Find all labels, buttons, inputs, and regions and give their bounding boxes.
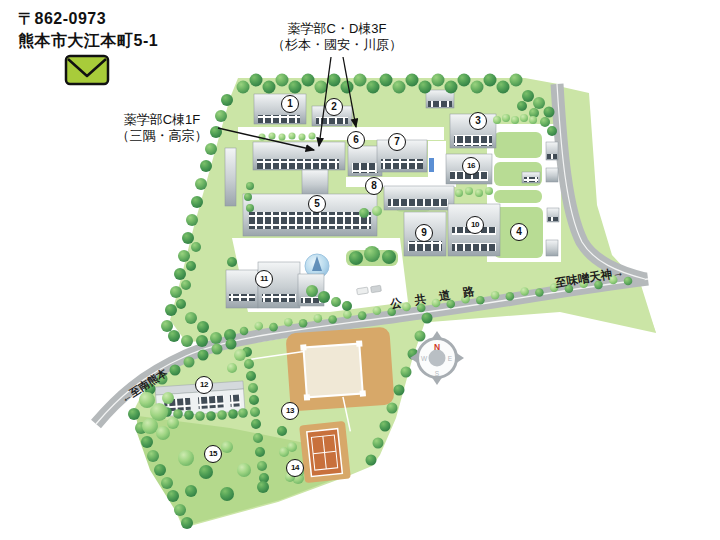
building-marker-4: 4 (510, 223, 528, 241)
building-marker-2: 2 (325, 98, 343, 116)
building-marker-16: 16 (462, 157, 480, 175)
compass-west-label: W (421, 355, 428, 362)
building-marker-12: 12 (195, 376, 213, 394)
building-marker-9: 9 (415, 224, 433, 242)
annotation-cd-line2: （杉本・國安・川原） (272, 37, 402, 53)
building-marker-14: 14 (286, 459, 304, 477)
building-marker-11: 11 (255, 270, 273, 288)
building-marker-1: 1 (281, 95, 299, 113)
building-marker-13: 13 (281, 402, 299, 420)
annotation-c-bldg-1f: 薬学部C棟1F （三隅・高宗） (117, 112, 208, 144)
envelope-icon (66, 56, 108, 84)
building-marker-6: 6 (347, 131, 365, 149)
building-marker-8: 8 (365, 177, 383, 195)
tennis-court (299, 421, 351, 483)
compass-east-label: E (448, 355, 453, 362)
annotation-c1-line2: （三隅・高宗） (117, 128, 208, 144)
compass-north-label: N (434, 342, 440, 352)
building-marker-15: 15 (204, 445, 222, 463)
annotation-cd-line1: 薬学部C・D棟3F (272, 21, 402, 37)
building-marker-3: 3 (469, 112, 487, 130)
postal-code: 〒862-0973 (18, 8, 158, 30)
building-marker-5: 5 (308, 195, 326, 213)
building-marker-7: 7 (388, 133, 406, 151)
map-canvas: N W E S 公共道路 至味噌天神→ ←至南熊本 (0, 0, 720, 540)
address-block: 〒862-0973 熊本市大江本町5-1 (18, 8, 158, 52)
annotation-cd-bldg-3f: 薬学部C・D棟3F （杉本・國安・川原） (272, 21, 402, 53)
campus-map: N W E S 公共道路 至味噌天神→ ←至南熊本 〒862-0973 熊本市大… (0, 0, 720, 540)
blue-vehicle (429, 158, 434, 172)
building-marker-10: 10 (466, 216, 484, 234)
compass-south-label: S (435, 370, 440, 377)
address-line: 熊本市大江本町5-1 (18, 30, 158, 52)
annotation-c1-line1: 薬学部C棟1F (117, 112, 208, 128)
